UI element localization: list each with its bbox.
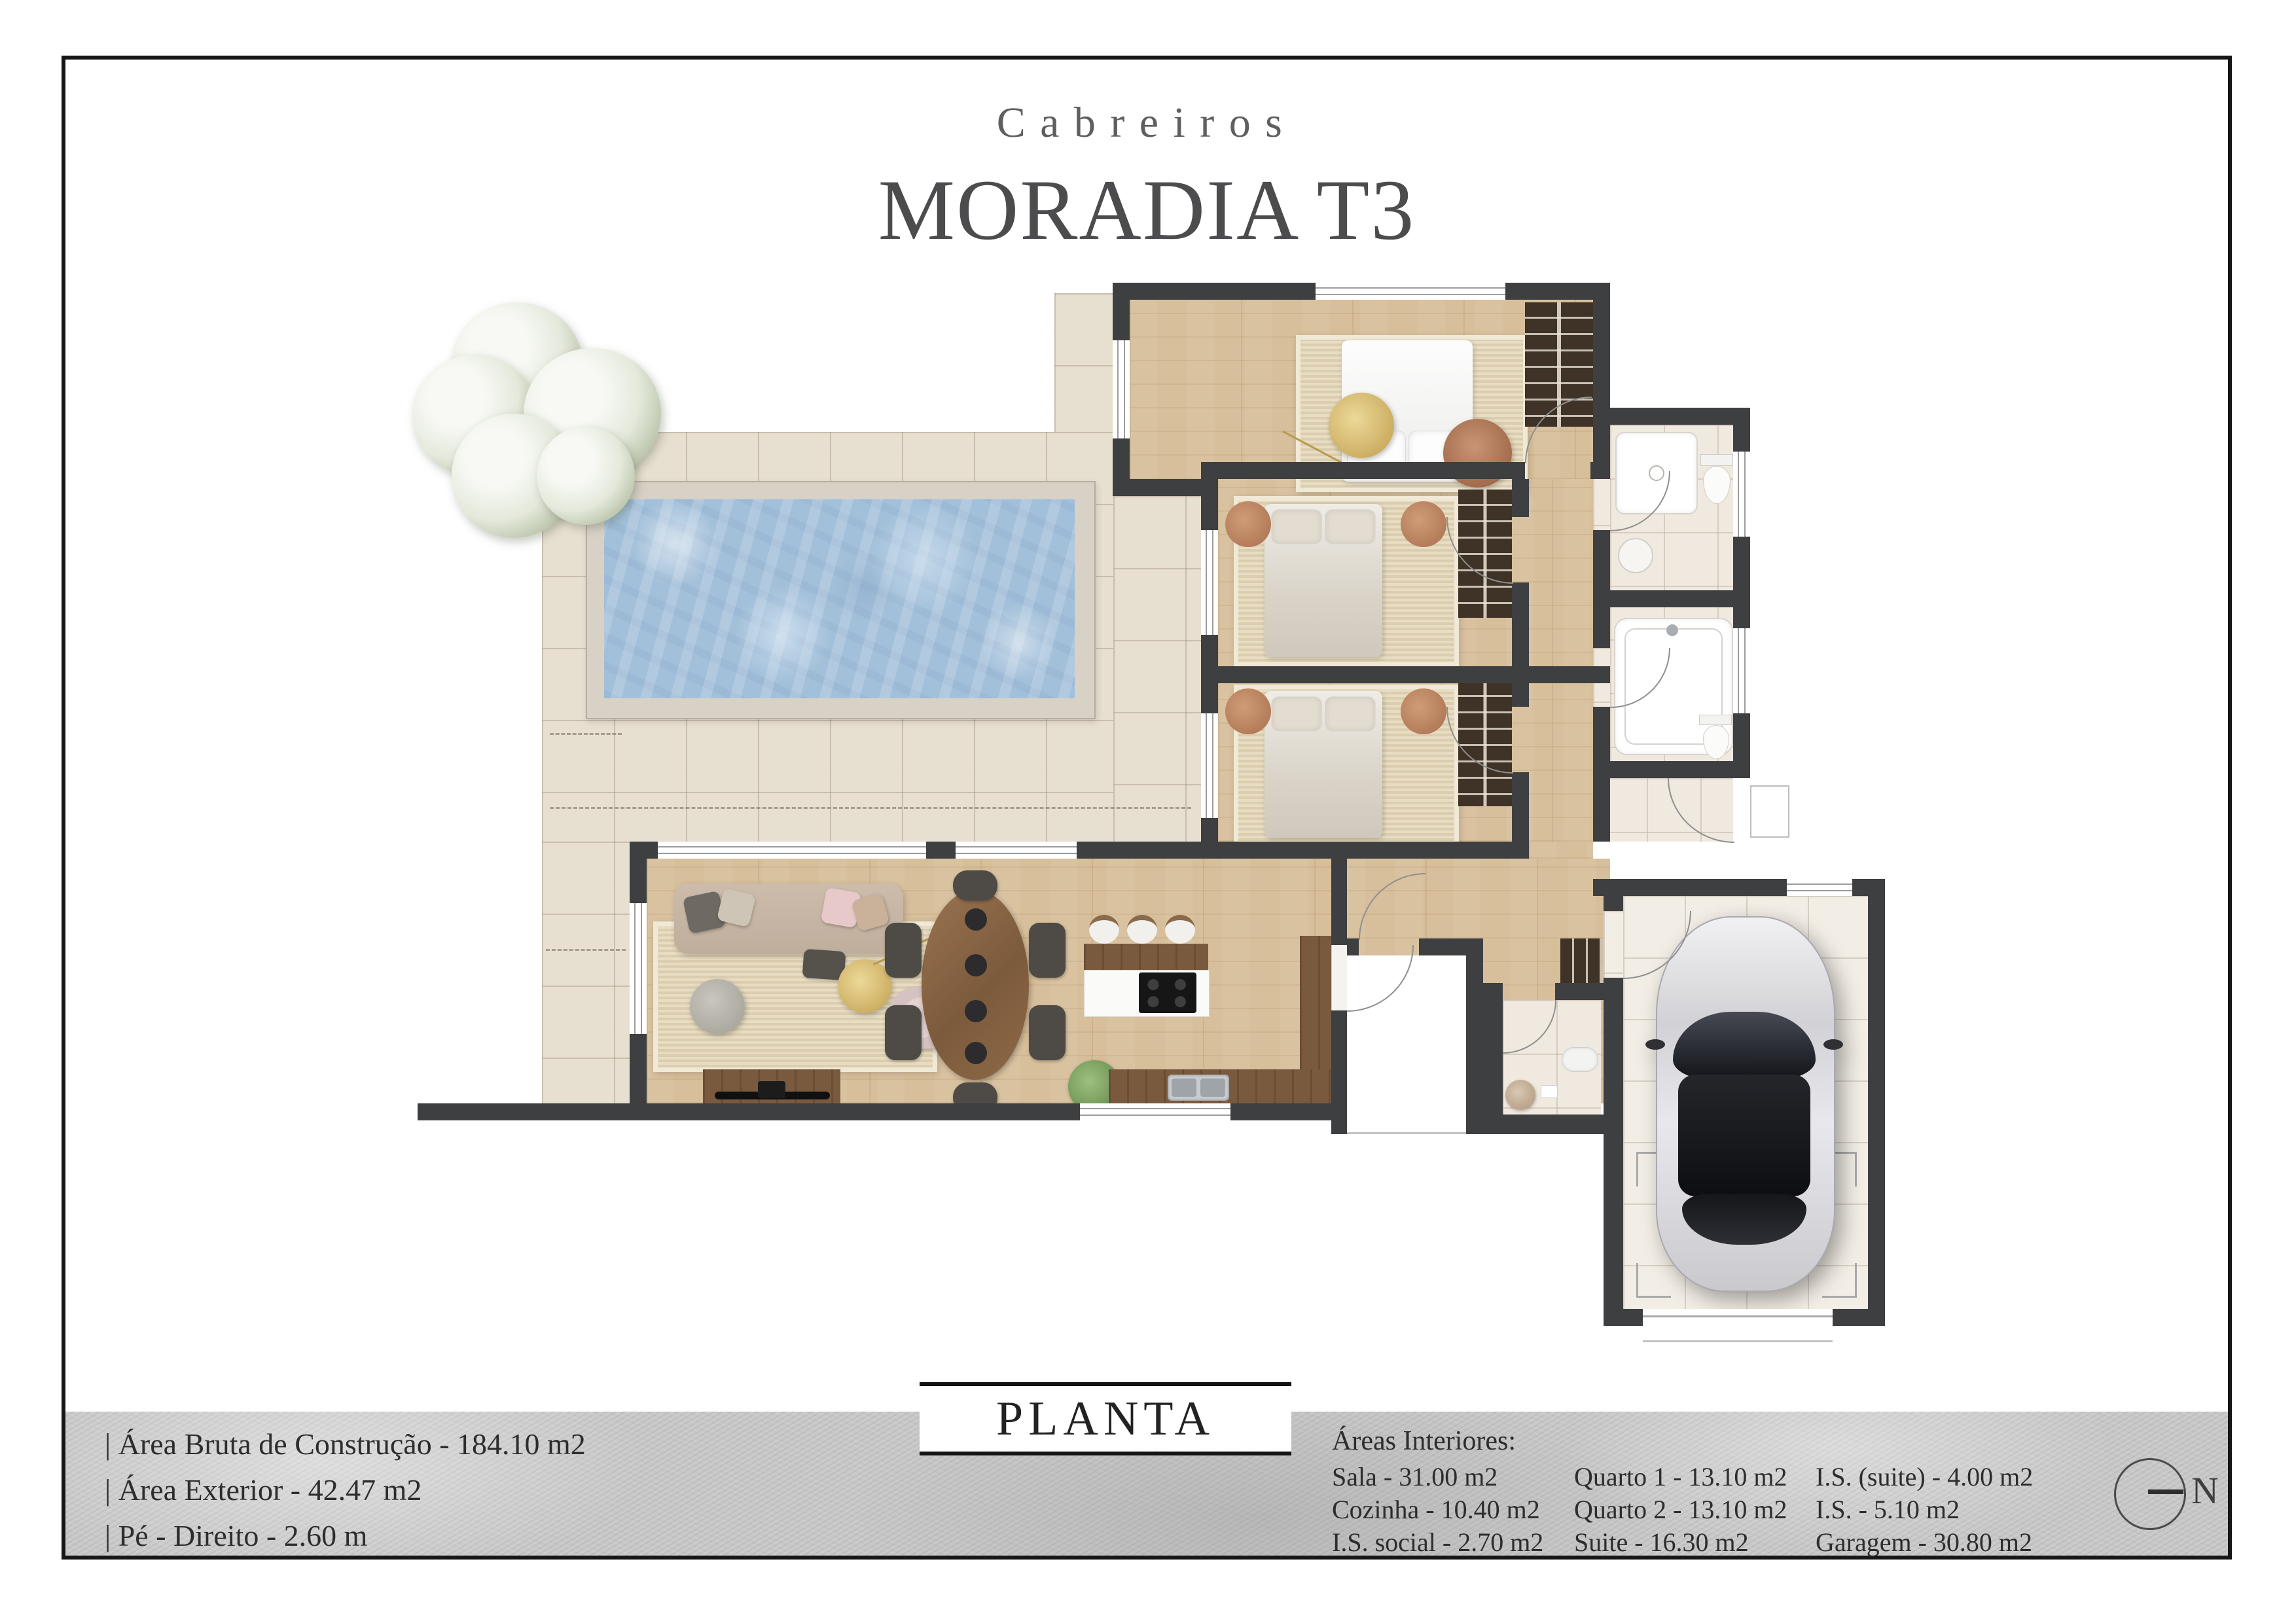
wall — [1604, 978, 1623, 1326]
wall — [1610, 408, 1750, 425]
window — [1316, 283, 1505, 300]
bedside-table — [1401, 688, 1446, 734]
terrace-joint-line — [550, 807, 1191, 809]
page-title: MORADIA T3 — [62, 160, 2232, 260]
dining-chair — [1029, 923, 1066, 978]
wall — [1610, 590, 1733, 607]
kitchen-counter — [1300, 936, 1331, 1069]
wall — [1483, 983, 1503, 1134]
terrace-tiles — [542, 842, 630, 1120]
bedside-table — [1401, 501, 1446, 547]
window — [1733, 452, 1750, 537]
window — [630, 903, 647, 1034]
plan-label-box: PLANTA — [920, 1382, 1291, 1455]
wall — [1604, 896, 1623, 911]
dining-table — [922, 890, 1029, 1080]
wall — [1593, 283, 1610, 471]
dining-chair — [1029, 1005, 1066, 1060]
area-item: Suite - 16.30 m2 — [1574, 1526, 1787, 1559]
dining-chair — [885, 923, 922, 978]
plate — [965, 1000, 987, 1022]
wall — [926, 842, 956, 859]
island-bar-top — [1084, 944, 1208, 970]
bedroom1-bed — [1265, 691, 1382, 838]
dining-bench — [953, 870, 997, 901]
bedroom2-bed — [1265, 504, 1382, 657]
wc-tray — [1541, 1085, 1558, 1098]
wall — [1419, 938, 1466, 955]
wall — [1593, 761, 1750, 778]
plan-label: PLANTA — [996, 1391, 1215, 1447]
wall — [1331, 859, 1347, 945]
sliding-door — [956, 842, 1077, 859]
window — [1201, 713, 1218, 818]
toilet-tank — [1700, 454, 1733, 466]
porch-threshold — [1347, 1132, 1466, 1134]
brand-name: Cabreiros — [62, 98, 2232, 148]
area-specs: | Área Bruta de Construção - 184.10 m2 |… — [105, 1421, 586, 1559]
wall — [1733, 408, 1750, 452]
spec-line: | Área Exterior - 42.47 m2 — [105, 1467, 586, 1513]
exterior-step — [1750, 785, 1789, 838]
coffee-table — [690, 979, 745, 1034]
wall — [1512, 479, 1529, 517]
wall — [1331, 1010, 1347, 1134]
gold-side-table — [838, 959, 891, 1013]
north-compass-icon — [2114, 1458, 2186, 1530]
plate — [965, 908, 987, 931]
area-item: I.S. - 5.10 m2 — [1816, 1493, 2033, 1526]
window — [1733, 628, 1750, 713]
wall — [418, 1103, 1080, 1120]
bar-stool — [1089, 915, 1119, 944]
wall — [1512, 582, 1529, 707]
hall-shoe-cabinet — [1560, 938, 1601, 983]
area-item: Quarto 2 - 13.10 m2 — [1574, 1493, 1787, 1526]
wall — [1466, 938, 1483, 1134]
terrace-joint-line — [546, 949, 626, 951]
window — [1080, 1103, 1230, 1120]
interior-areas-col2: Quarto 1 - 13.10 m2 Quarto 2 - 13.10 m2 … — [1574, 1461, 1787, 1559]
sliding-door — [658, 842, 926, 859]
toilet-tank — [1699, 715, 1732, 725]
dining-chair — [885, 1005, 922, 1060]
car-mirror — [1645, 1039, 1665, 1050]
garage-door-threshold — [1604, 911, 1623, 978]
kitchen-sink — [1168, 1075, 1229, 1101]
wall — [1512, 772, 1529, 842]
plate — [965, 1042, 987, 1064]
driveway-line — [1643, 1340, 1833, 1342]
bedside-table — [1225, 688, 1271, 734]
wall — [1230, 1103, 1331, 1120]
north-label: N — [2191, 1469, 2219, 1512]
wall — [1201, 462, 1525, 479]
area-item: I.S. (suite) - 4.00 m2 — [1816, 1461, 2033, 1493]
pillow — [1271, 696, 1322, 732]
pillow — [1325, 696, 1376, 732]
wall — [1201, 666, 1610, 683]
wc-toilet — [1562, 1047, 1598, 1072]
pillow — [1325, 509, 1376, 544]
area-item: Sala - 31.00 m2 — [1332, 1461, 1543, 1493]
wall — [1483, 1115, 1623, 1134]
pillow — [1271, 509, 1322, 544]
bath-door-threshold — [1593, 471, 1610, 530]
window — [1201, 530, 1218, 635]
terrace-tiles — [1113, 496, 1201, 842]
plate — [965, 954, 987, 976]
garden-tree — [412, 296, 672, 555]
interior-areas-col1: Sala - 31.00 m2 Cozinha - 10.40 m2 I.S. … — [1332, 1461, 1543, 1559]
wall — [1733, 537, 1750, 628]
wall — [1593, 530, 1610, 648]
area-item: I.S. social - 2.70 m2 — [1332, 1526, 1543, 1559]
north-needle-icon — [2148, 1489, 2183, 1494]
area-item: Quarto 1 - 13.10 m2 — [1574, 1461, 1787, 1493]
interior-areas-col3: I.S. (suite) - 4.00 m2 I.S. - 5.10 m2 Ga… — [1816, 1461, 2033, 1559]
garage-door — [1643, 1309, 1833, 1326]
cooktop — [1139, 972, 1196, 1013]
spec-line: | Pé - Direito - 2.60 m — [105, 1513, 586, 1559]
wall — [1833, 1309, 1885, 1326]
floor-plan-sheet: Cabreiros MORADIA T3 — [0, 0, 2296, 1623]
wall — [1077, 842, 1529, 859]
window — [1113, 340, 1130, 438]
area-item: Garagem - 30.80 m2 — [1816, 1526, 2033, 1559]
car — [1656, 916, 1833, 1289]
interior-areas-heading: Áreas Interiores: — [1332, 1425, 1516, 1457]
corridor-opening-floor — [1529, 842, 1593, 859]
car-mirror — [1823, 1039, 1843, 1050]
area-item: Cozinha - 10.40 m2 — [1332, 1493, 1543, 1526]
title-block: Cabreiros MORADIA T3 — [62, 98, 2232, 260]
terrace-joint-line — [550, 733, 622, 735]
wall — [1113, 479, 1218, 496]
tub-faucet — [1666, 624, 1678, 636]
wall — [630, 842, 647, 903]
terrace-tiles — [1054, 293, 1117, 444]
bar-stool — [1127, 915, 1157, 944]
wall — [1868, 879, 1885, 1326]
gold-pendant-light — [1329, 393, 1394, 458]
bedside-table — [1225, 501, 1271, 547]
bath-sink — [1618, 538, 1653, 573]
tv-base — [758, 1081, 785, 1098]
wall — [1604, 1309, 1643, 1326]
swimming-pool — [604, 499, 1075, 698]
wall — [1113, 283, 1316, 300]
car-roof — [1678, 1075, 1810, 1196]
bar-stool — [1165, 915, 1195, 944]
window — [1787, 879, 1852, 896]
spec-line: | Área Bruta de Construção - 184.10 m2 — [105, 1421, 586, 1467]
wc-basin — [1505, 1080, 1535, 1110]
